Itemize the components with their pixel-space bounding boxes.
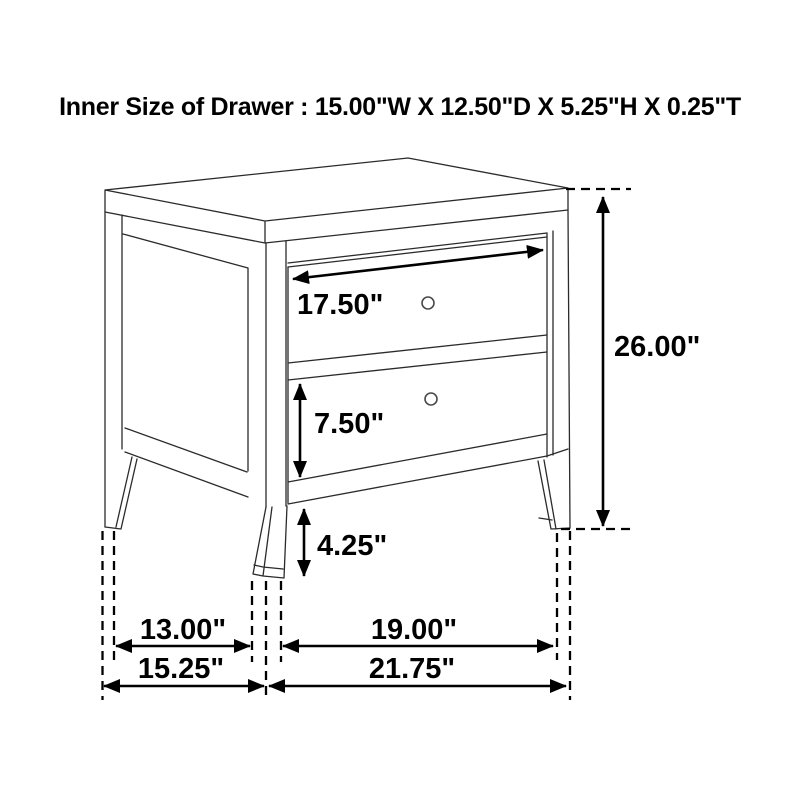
nightstand-case xyxy=(105,158,570,578)
nightstand-drawing: 17.50" 7.50" 4.25" 26.00" 13.00" 19.00" … xyxy=(0,0,800,800)
top-face xyxy=(105,158,568,243)
front-left-leg xyxy=(253,506,287,578)
dimension-arrows xyxy=(104,197,603,686)
label-bottom-drawer-height: 7.50" xyxy=(314,408,384,440)
dim-arrow-drawer-width xyxy=(293,250,543,279)
knob-icon xyxy=(422,297,434,309)
label-front-leg-spacing: 19.00" xyxy=(371,614,457,646)
knob-icon xyxy=(425,393,437,405)
label-overall-depth: 15.25" xyxy=(138,653,224,685)
label-floor-clearance: 4.25" xyxy=(317,530,387,562)
label-overall-width: 21.75" xyxy=(369,653,455,685)
back-left-leg xyxy=(105,457,137,529)
label-drawer-width: 17.50" xyxy=(297,289,383,321)
diagram-canvas: Inner Size of Drawer : 15.00"W X 12.50"D… xyxy=(0,0,800,800)
label-side-leg-spacing: 13.00" xyxy=(140,614,226,646)
label-overall-height: 26.00" xyxy=(614,331,700,363)
front-right-leg xyxy=(538,460,570,529)
